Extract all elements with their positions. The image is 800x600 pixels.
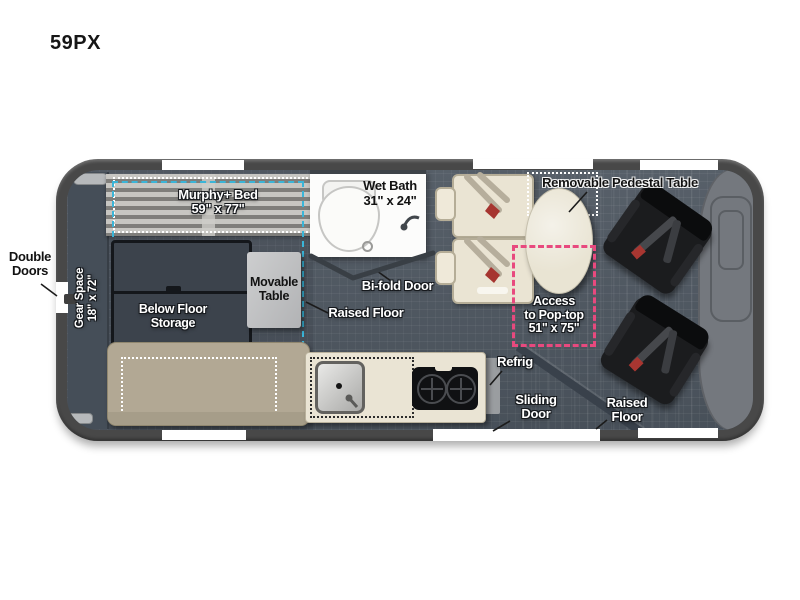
storage-line1: Below Floor bbox=[108, 303, 238, 317]
stove-icon bbox=[412, 367, 478, 410]
double-doors-line1: Double bbox=[4, 250, 56, 264]
gear-space-line2: 18" x 72" bbox=[87, 238, 100, 358]
double-doors-label: Double Doors bbox=[4, 250, 56, 278]
raised-floor-mid-label: Raised Floor bbox=[325, 306, 407, 320]
window-cutout bbox=[162, 430, 246, 440]
shower-drain-icon bbox=[362, 241, 373, 252]
storage-line2: Storage bbox=[108, 317, 238, 331]
gear-space-label: Gear Space 18" x 72" bbox=[74, 238, 102, 358]
window-cutout bbox=[162, 160, 244, 170]
window-cutout bbox=[638, 428, 718, 438]
movable-table-line2: Table bbox=[247, 290, 301, 304]
murphy-bed-line1: Murphy+ Bed bbox=[118, 188, 318, 202]
raised-floor-mid-text: Raised Floor bbox=[325, 306, 407, 320]
double-doors-line2: Doors bbox=[4, 264, 56, 278]
below-floor-storage bbox=[111, 240, 252, 346]
access-line3: 51" x 75" bbox=[495, 322, 613, 336]
bifold-door-label: Bi-fold Door bbox=[350, 279, 445, 293]
pop-top-access-label: Access to Pop-top 51" x 75" bbox=[495, 295, 613, 336]
raised-front-line2: Floor bbox=[597, 410, 657, 424]
roof-vent-icon bbox=[73, 173, 108, 185]
sliding-door-label: Sliding Door bbox=[505, 393, 567, 420]
pedestal-table-label: Removable Pedestal Table bbox=[525, 176, 715, 190]
movable-table-line1: Movable bbox=[247, 276, 301, 290]
wet-bath-line1: Wet Bath bbox=[340, 178, 440, 193]
access-line1: Access bbox=[495, 295, 613, 309]
entry-step-icon bbox=[67, 413, 93, 424]
below-floor-storage-label: Below Floor Storage bbox=[108, 303, 238, 330]
seat-2-armrest bbox=[477, 287, 508, 294]
raised-floor-front-label: Raised Floor bbox=[597, 396, 657, 423]
sliding-door-line1: Sliding bbox=[505, 393, 567, 407]
murphy-bed-label: Murphy+ Bed 59" x 77" bbox=[118, 188, 318, 215]
sliding-door-line2: Door bbox=[505, 407, 567, 421]
steering-console-outline bbox=[718, 210, 744, 270]
model-title: 59PX bbox=[50, 32, 101, 55]
wet-bath-label: Wet Bath 31" x 24" bbox=[340, 178, 440, 208]
sofa-dotted-outline bbox=[121, 357, 277, 423]
cab-dashboard-area bbox=[698, 170, 753, 430]
gear-space-line1: Gear Space bbox=[74, 238, 87, 358]
rear-facing-seat-1 bbox=[452, 174, 534, 238]
storage-divider-line bbox=[114, 291, 249, 294]
refrig-text: Refrig bbox=[480, 355, 550, 369]
sink-drain-icon bbox=[336, 383, 342, 389]
double-doors-pointer-line bbox=[41, 284, 57, 296]
sliding-door-opening bbox=[433, 429, 600, 441]
bifold-door-text: Bi-fold Door bbox=[350, 279, 445, 293]
refrig-label: Refrig bbox=[480, 355, 550, 369]
galley-counter bbox=[305, 352, 486, 423]
murphy-bed-line2: 59" x 77" bbox=[118, 202, 318, 216]
wet-bath-line2: 31" x 24" bbox=[340, 193, 440, 208]
sofa-bench bbox=[107, 342, 310, 426]
floorplan-page: 59PX Double Doors bbox=[0, 0, 800, 600]
sink-icon bbox=[315, 361, 365, 414]
pedestal-table-text: Removable Pedestal Table bbox=[525, 176, 715, 190]
window-cutout bbox=[473, 159, 593, 169]
storage-handle-icon bbox=[166, 286, 181, 293]
stove-burner-icon bbox=[417, 374, 447, 404]
raised-front-line1: Raised bbox=[597, 396, 657, 410]
window-cutout bbox=[640, 160, 718, 170]
stove-burner-icon bbox=[446, 374, 476, 404]
access-line2: to Pop-top bbox=[495, 309, 613, 323]
movable-table-label: Movable Table bbox=[247, 276, 301, 303]
